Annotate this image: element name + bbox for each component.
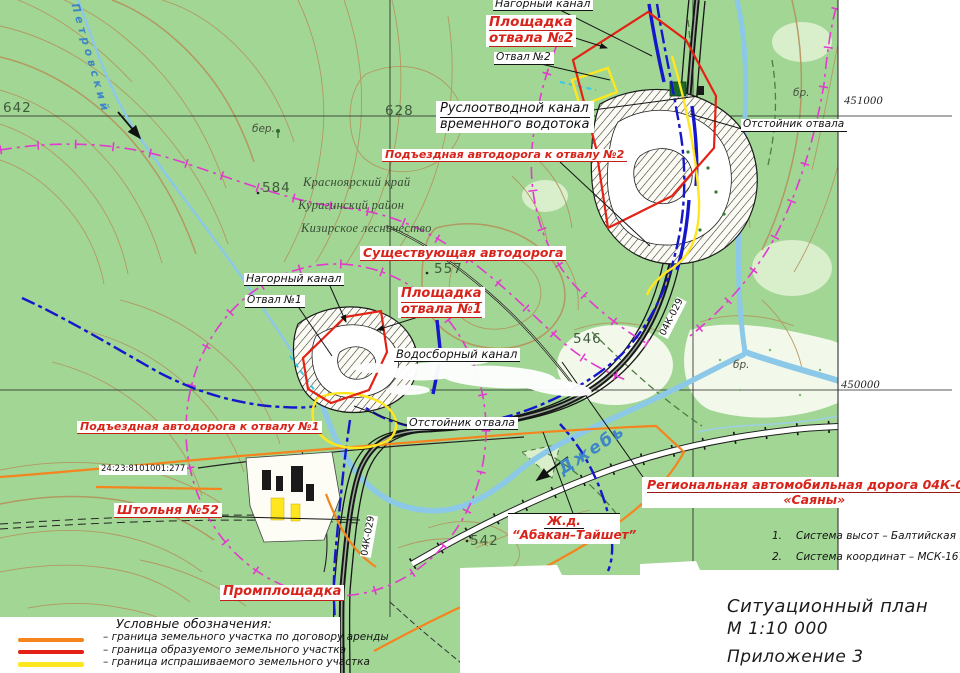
note-2-number: 2. (772, 552, 782, 564)
access-road-1-label: Подъездная автодорога к отвалу №1 (77, 421, 322, 434)
note-2-text: Система координат – МСК-167. (796, 552, 960, 564)
dump-site-2-label-line2: отвала №2 (489, 31, 573, 47)
existing-road-label: Существующая автодорога (360, 246, 566, 261)
dump-site-2-label-line1: Площадка (489, 15, 573, 31)
industrial-site-label: Промплощадка (220, 585, 344, 601)
grid-northing-451000: 451000 (844, 94, 883, 107)
dump-2-label: Отвал №2 (494, 52, 554, 65)
regional-road-label: Региональная автомобильная дорога 04К-02… (642, 477, 960, 508)
ford-mark-mid: бр. (733, 360, 749, 372)
cadastral-number-label: 24:23:8101001:277 (99, 465, 187, 475)
forestry-label: Кизирское лесничество (301, 221, 432, 235)
legend-title: Условные обозначения: (116, 617, 272, 631)
note-1-number: 1. (772, 531, 782, 543)
dump-site-2-label: Площадка отвала №2 (486, 15, 576, 47)
diversion-channel-label: Руслоотводной канал временного водотока (436, 101, 594, 133)
sheet-title: Ситуационный план (727, 597, 928, 617)
dump-1-label: Отвал №1 (245, 295, 305, 308)
elevation-542: 542 (470, 534, 499, 549)
elevation-642: 642 (3, 101, 32, 116)
ford-mark-top: бр. (793, 88, 809, 100)
regional-road-label-line2: «Саяны» (783, 492, 845, 507)
settling-pond-1-label: Отстойник отвала (407, 417, 518, 430)
collector-channel-label: Водосборный канал (394, 348, 520, 362)
sheet-appendix: Приложение 3 (727, 648, 864, 667)
nagorny-kanal-2-label: Нагорный канал (493, 0, 593, 11)
industrial-site (246, 452, 340, 542)
nagorny-kanal-1-label: Нагорный канал (244, 273, 344, 286)
dump-site-1-label-line2: отвала №1 (401, 303, 482, 319)
diversion-channel-label-line2: временного водотока (440, 118, 590, 133)
grid-northing-450000: 450000 (841, 378, 880, 391)
dump-site-1-label-line1: Площадка (401, 287, 482, 303)
legend-swatch-requested (18, 662, 84, 667)
elevation-557: 557 (434, 262, 463, 277)
railway-label: Ж.д. “Абакан–Тайшет” (508, 513, 620, 544)
elevation-584: 584 (262, 181, 291, 196)
district-label: Курагинский район (298, 198, 404, 212)
dump-site-1-label: Площадка отвала №1 (398, 287, 485, 318)
railway-label-line1: Ж.д. (512, 515, 616, 529)
legend-item-lease: – граница земельного участка по договору… (103, 632, 389, 644)
legend-item-formed: – граница образуемого земельного участка (103, 645, 346, 657)
regional-road-label-line1: Региональная автомобильная дорога 04К-02… (647, 478, 960, 493)
elevation-628: 628 (385, 104, 414, 119)
birch-mark: бер. (252, 124, 275, 136)
legend-swatch-lease (18, 638, 84, 642)
note-1-text: Система высот – Балтийская 1977 г. (796, 531, 960, 543)
region-label: Красноярский край (303, 175, 410, 189)
situational-plan-sheet: Нагорный канал Площадка отвала №2 Отвал … (0, 0, 960, 673)
railway-label-abbr: Ж.д. (544, 515, 584, 529)
elevation-546: 546 (573, 332, 602, 347)
legend-item-requested: – граница испрашиваемого земельного учас… (103, 657, 370, 669)
sheet-scale: М 1:10 000 (727, 620, 828, 639)
settling-pond-2-label: Отстойник отвала (741, 119, 847, 132)
railway-label-line2: “Абакан–Тайшет” (512, 529, 616, 542)
adit-52-label: Штольня №52 (114, 503, 222, 518)
access-road-2-label: Подъездная автодорога к отвалу №2 (382, 149, 627, 162)
legend-swatch-formed (18, 650, 84, 654)
diversion-channel-label-line1: Руслоотводной канал (440, 102, 590, 118)
